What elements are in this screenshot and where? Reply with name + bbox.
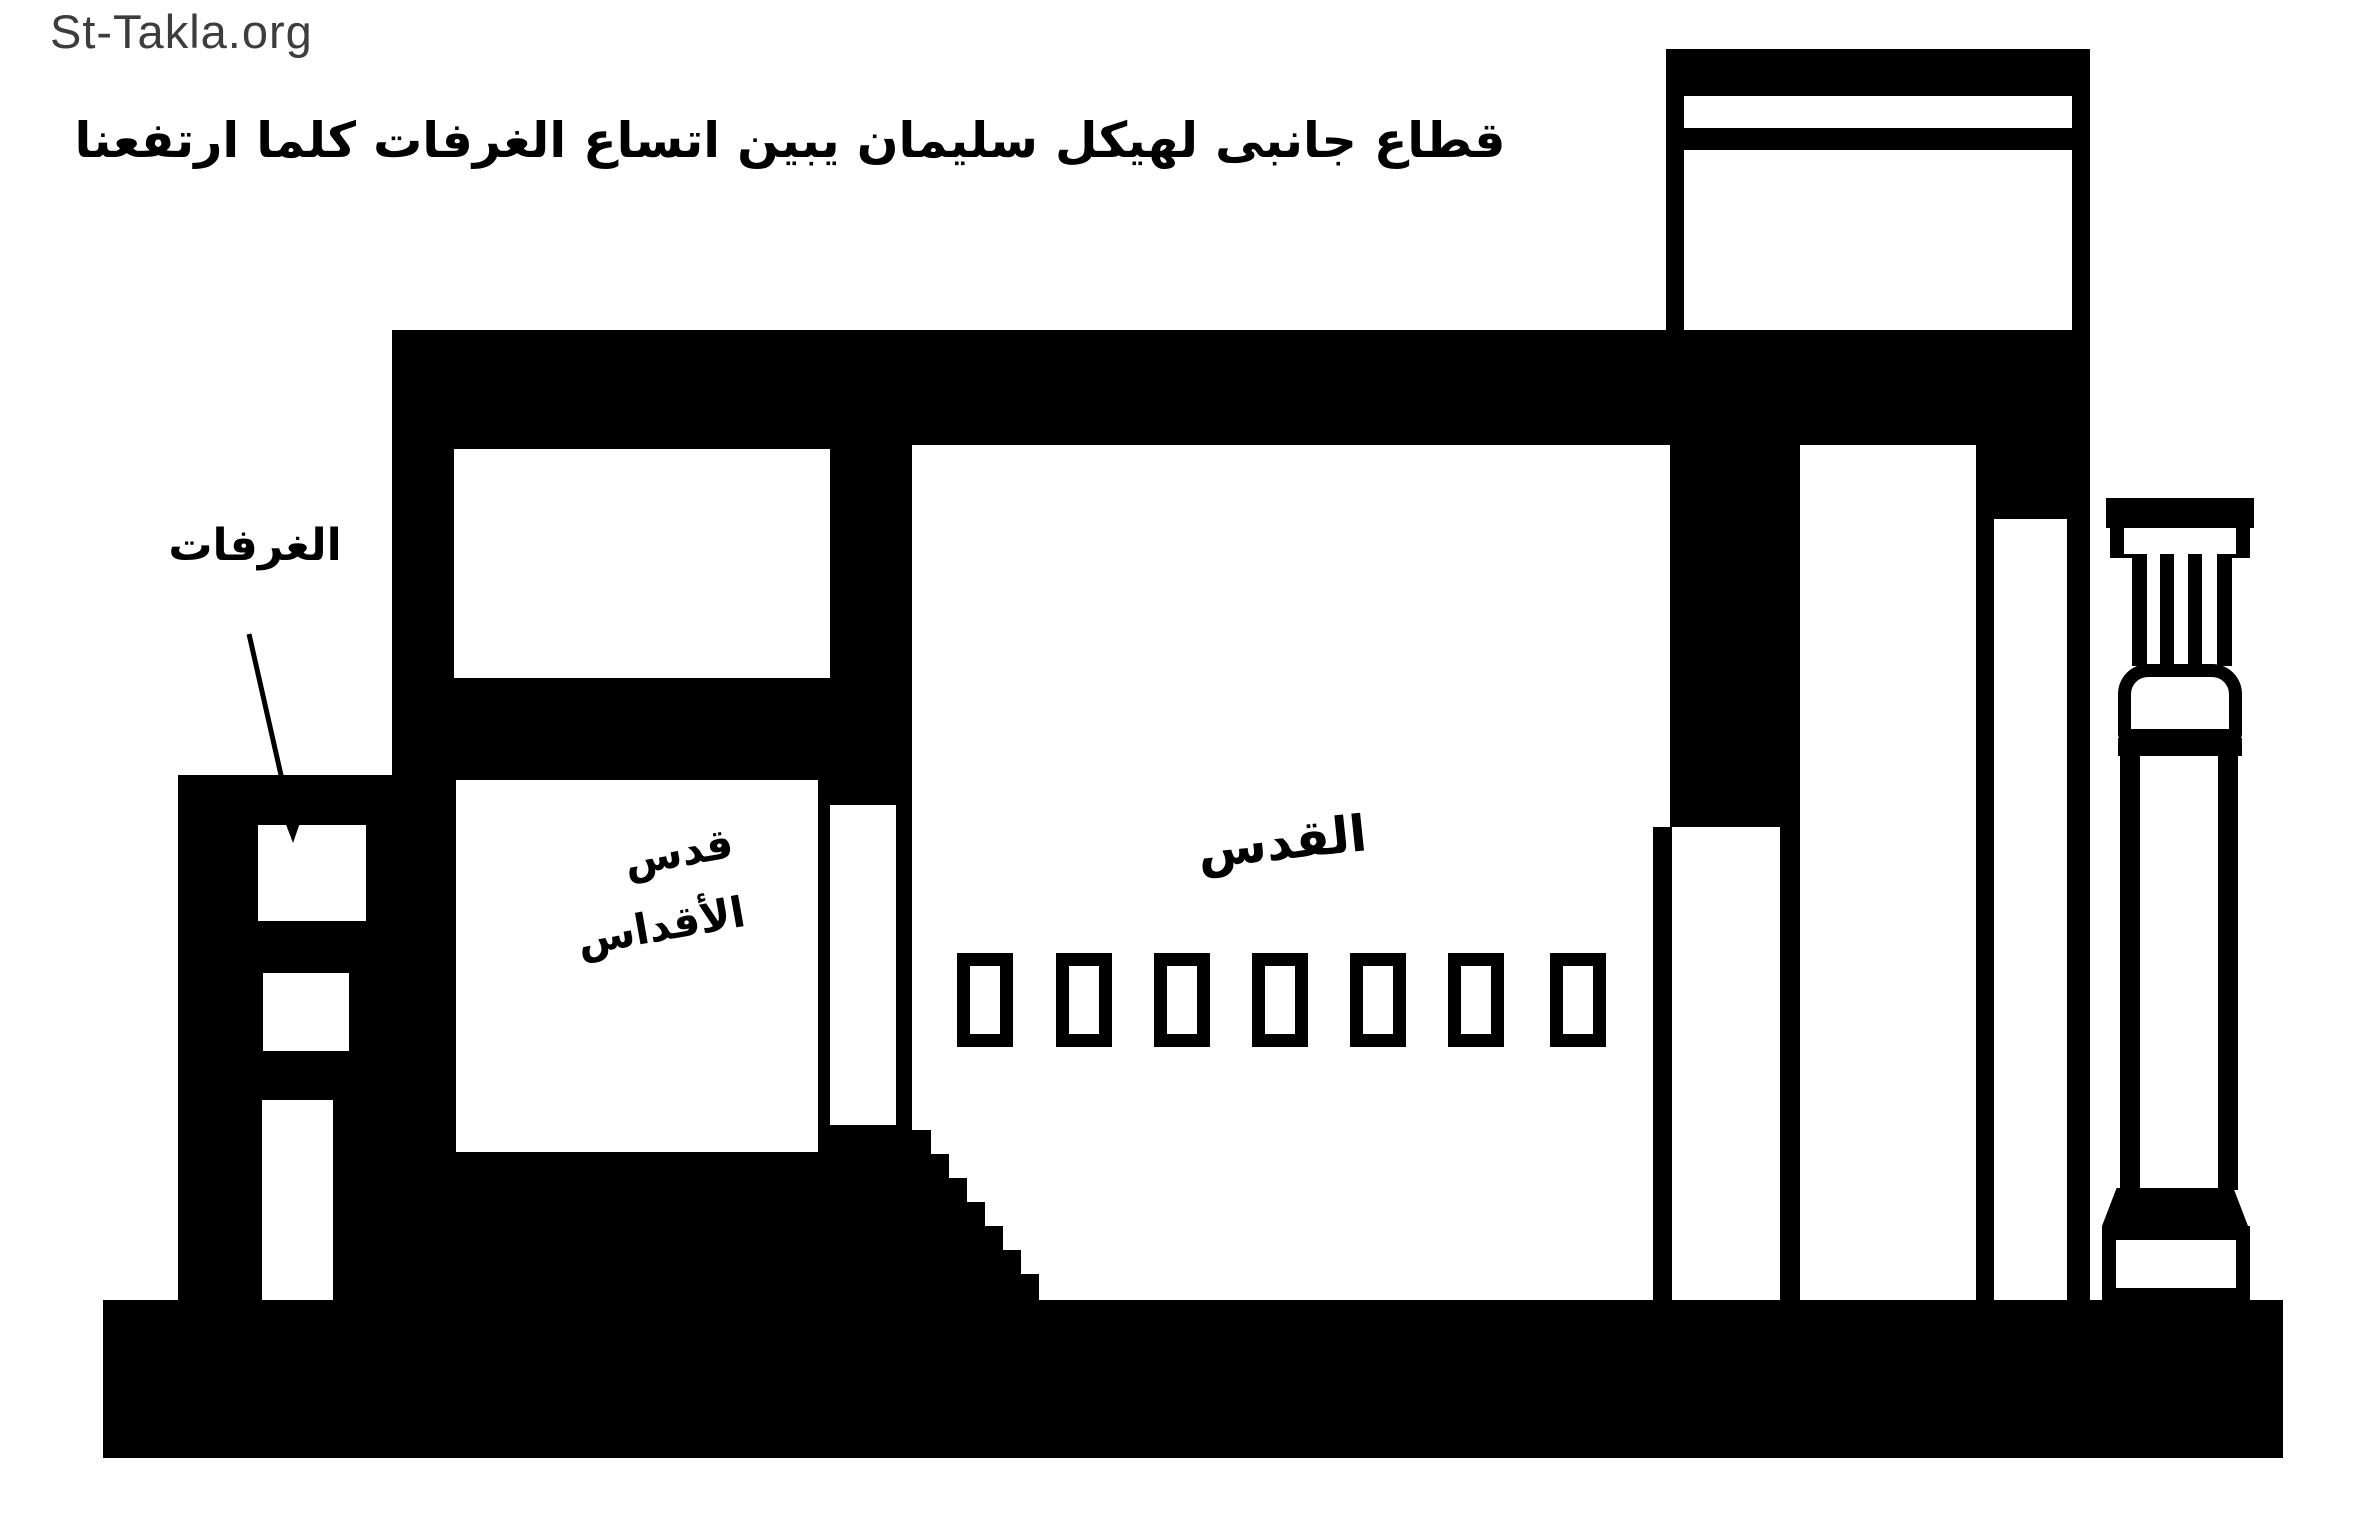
diagram-title: قطاع جانبى لهيكل سليمان يبين اتساع الغرف… [60, 112, 1520, 169]
side-chamber-window-middle [263, 973, 349, 1051]
temple-east-wall-upper [1670, 445, 1800, 827]
clerestory-window [1056, 953, 1112, 1047]
clerestory-window [1550, 953, 1606, 1047]
pillar-flute-bar [2188, 554, 2202, 666]
stair-step [984, 1226, 1003, 1300]
clerestory-window [1154, 953, 1210, 1047]
clerestory-window [1448, 953, 1504, 1047]
clerestory-window [957, 953, 1013, 1047]
porch-post-cap [1976, 445, 2090, 519]
pillar-base-block [2102, 1226, 2250, 1302]
side-chambers-structure [178, 775, 392, 1300]
clerestory-window [1252, 953, 1308, 1047]
pointer-arrow-line [249, 634, 293, 828]
stair-step [948, 1178, 967, 1300]
pillar-base-cap [2102, 1188, 2248, 1226]
pillar-capital-cushion [2118, 664, 2242, 742]
side-chamber-window-bottom [262, 1100, 333, 1300]
gate-tower-interior [1684, 150, 2072, 330]
east-door-jamb-right [1780, 827, 1800, 1300]
stair-step [966, 1202, 985, 1300]
pillar-flute-bar [2160, 554, 2174, 666]
stair-step [1020, 1274, 1039, 1300]
stair-step [1002, 1250, 1021, 1300]
pointer-arrow-head [285, 820, 301, 843]
pillar-flute-bar [2132, 554, 2147, 666]
holy-place-room: القدس [912, 445, 1670, 1300]
gate-tower-cornice-slit [1684, 96, 2072, 128]
site-watermark: St-Takla.org [50, 4, 313, 59]
pillar-shaft-right [2218, 756, 2238, 1190]
pillar-capital-band [2118, 738, 2242, 756]
east-door-jamb-left [1653, 827, 1672, 1300]
pillar-abacus [2106, 498, 2254, 528]
porch-post-left-line [1976, 519, 1994, 1300]
holy-of-holies-doorway [830, 805, 896, 1125]
stair-step [912, 1130, 931, 1300]
stair-step [930, 1154, 949, 1300]
pillar-shaft-left [2120, 756, 2140, 1190]
clerestory-window [1350, 953, 1406, 1047]
upper-chamber-room [454, 449, 830, 678]
side-rooms-label: الغرفات [150, 520, 360, 571]
pillar-flutes [2132, 554, 2232, 666]
base-platform [103, 1300, 2283, 1458]
pointer-arrow [235, 628, 315, 853]
porch-post-right-line [2067, 519, 2090, 1300]
gate-tower [1666, 49, 2090, 330]
pillar-flute-bar [2217, 554, 2232, 666]
temple-section-diagram: St-Takla.org قطاع جانبى لهيكل سليمان يبي… [0, 0, 2376, 1516]
temple-roof [392, 330, 2090, 445]
holy-place-label: القدس [1165, 801, 1400, 883]
pillar-neck-inner [2124, 528, 2236, 554]
